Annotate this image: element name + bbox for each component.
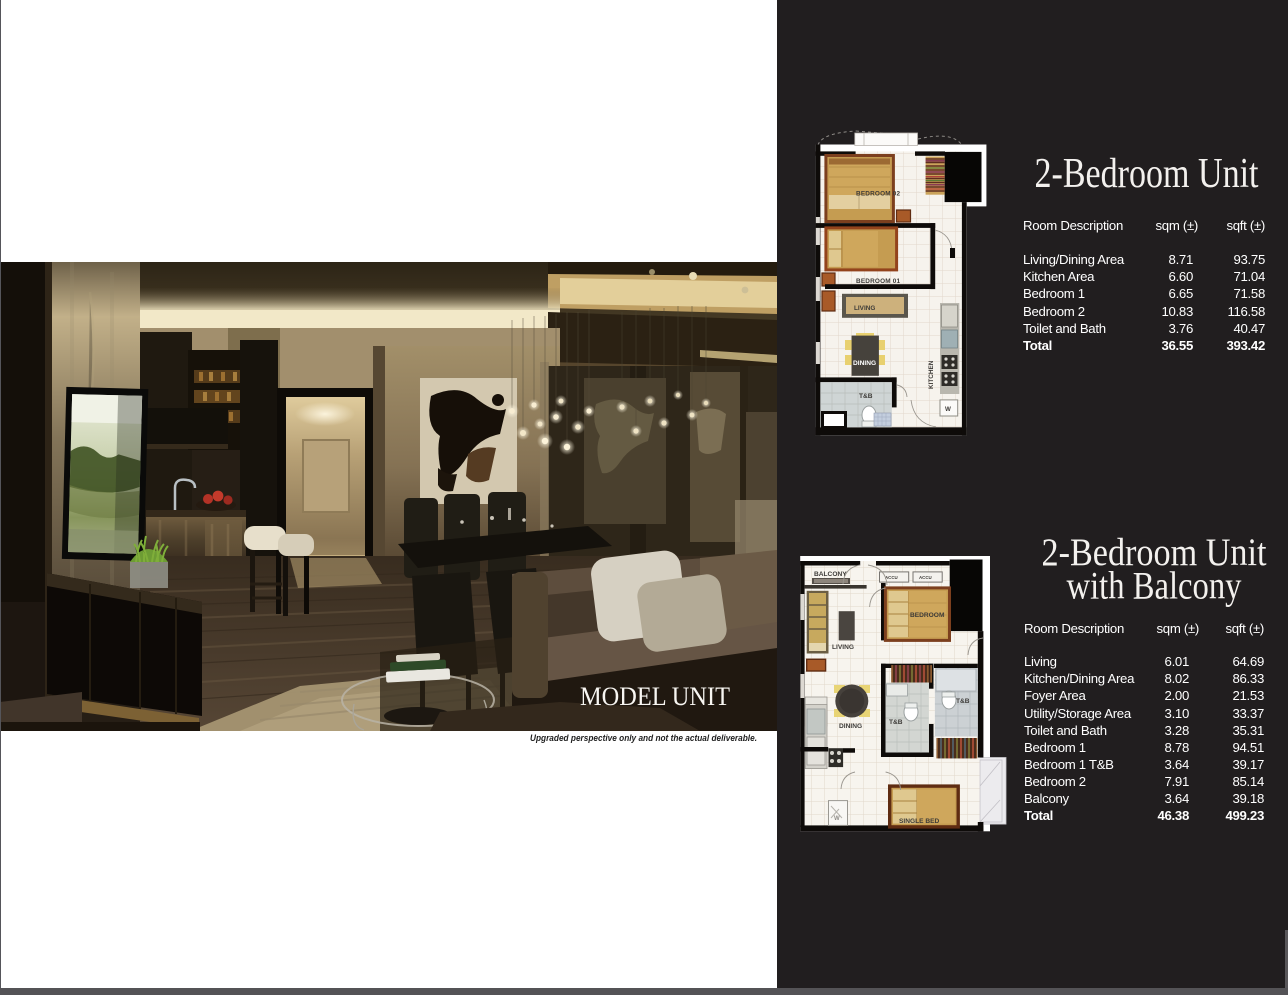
svg-text:BEDROOM 01: BEDROOM 01 bbox=[856, 278, 901, 285]
svg-text:W: W bbox=[945, 406, 951, 413]
svg-text:W: W bbox=[834, 816, 840, 822]
svg-text:DINING: DINING bbox=[853, 360, 876, 367]
svg-text:T&B: T&B bbox=[859, 393, 873, 400]
svg-text:2-Bedroom Unit: 2-Bedroom Unit bbox=[1035, 151, 1259, 197]
svg-text:BALCONY: BALCONY bbox=[814, 571, 847, 578]
svg-text:MODEL UNIT: MODEL UNIT bbox=[580, 682, 730, 711]
svg-text:BEDROOM 02: BEDROOM 02 bbox=[856, 191, 901, 198]
svg-text:with Balcony: with Balcony bbox=[1067, 565, 1242, 608]
svg-text:DINING: DINING bbox=[839, 723, 862, 730]
svg-text:Upgraded perspective only and: Upgraded perspective only and not the ac… bbox=[530, 733, 757, 744]
svg-text:KITCHEN: KITCHEN bbox=[928, 360, 935, 389]
svg-text:LIVING: LIVING bbox=[854, 305, 875, 312]
svg-text:LIVING: LIVING bbox=[832, 644, 854, 651]
svg-text:ACCU: ACCU bbox=[919, 575, 932, 580]
svg-text:SINGLE BED: SINGLE BED bbox=[899, 818, 940, 825]
svg-text:T&B: T&B bbox=[889, 719, 903, 726]
svg-text:T&B: T&B bbox=[956, 698, 970, 705]
svg-text:BEDROOM: BEDROOM bbox=[910, 612, 945, 619]
svg-text:ACCU: ACCU bbox=[885, 575, 898, 580]
